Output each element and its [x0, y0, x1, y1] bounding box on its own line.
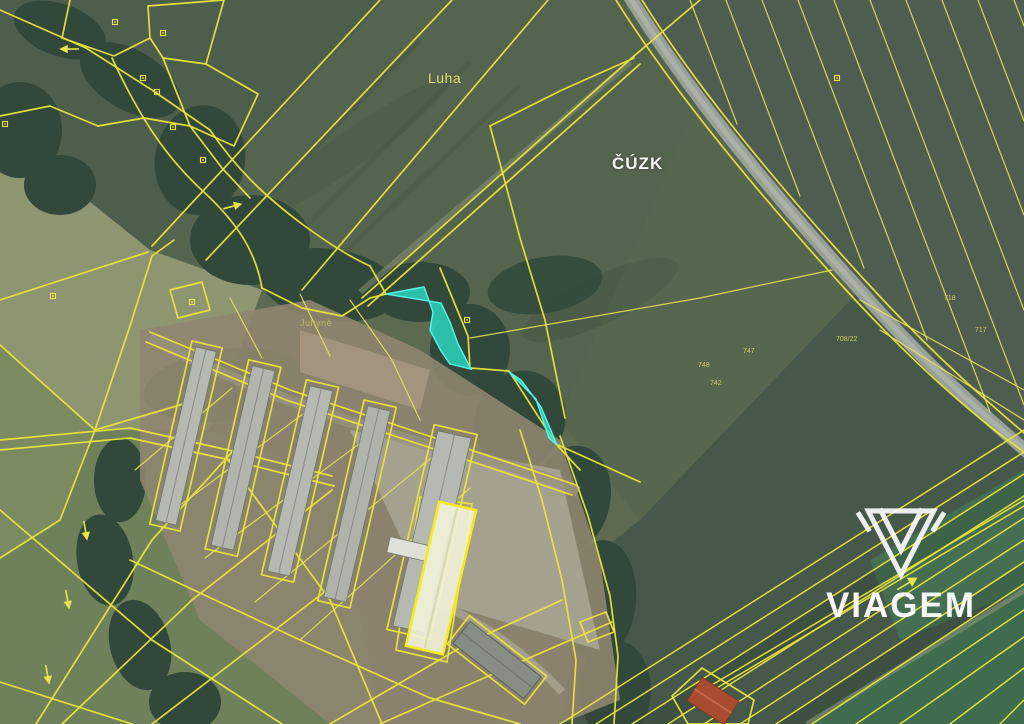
parcel-number: 708/22 — [836, 336, 857, 343]
parcel-number: 742 — [710, 380, 722, 387]
map-canvas[interactable]: Luha Juhyně ČÚZK 708/22 748 747 742 718 … — [0, 0, 1024, 724]
parcel-number: 747 — [743, 348, 755, 355]
stream-label: Juhyně — [300, 318, 332, 328]
cuzk-watermark: ČÚZK — [612, 154, 663, 174]
parcel-number: 718 — [944, 295, 956, 302]
gem-icon — [853, 500, 949, 582]
locality-label: Luha — [428, 70, 461, 86]
parcel-number: 748 — [698, 362, 710, 369]
parcel-number: 717 — [975, 327, 987, 334]
viagem-wordmark: VIAGEM — [806, 588, 996, 623]
viagem-logo: VIAGEM — [806, 500, 996, 623]
